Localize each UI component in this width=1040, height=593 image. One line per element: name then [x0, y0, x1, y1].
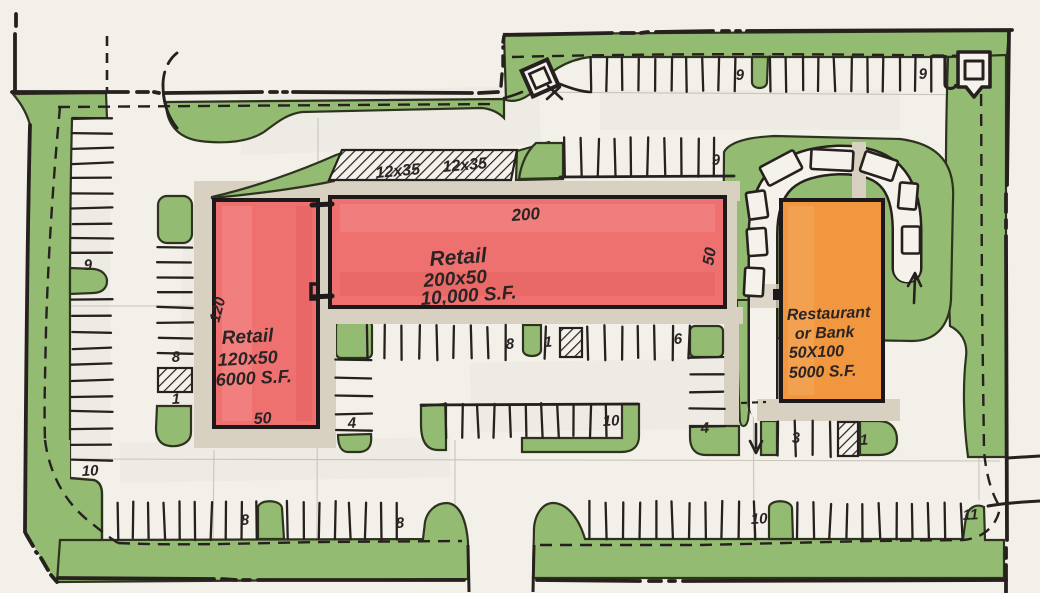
svg-text:50: 50	[253, 410, 272, 428]
svg-text:1: 1	[171, 391, 180, 408]
svg-text:3: 3	[791, 430, 801, 447]
svg-text:9: 9	[918, 66, 928, 83]
svg-text:200: 200	[510, 204, 541, 225]
svg-text:1: 1	[543, 334, 552, 351]
svg-text:4: 4	[699, 420, 710, 438]
svg-text:8: 8	[171, 349, 181, 366]
svg-text:9: 9	[735, 67, 745, 84]
svg-text:9: 9	[83, 257, 93, 274]
svg-text:or Bank: or Bank	[795, 324, 856, 343]
svg-text:6: 6	[673, 331, 683, 348]
svg-text:50: 50	[700, 246, 720, 267]
svg-text:8: 8	[395, 515, 405, 532]
svg-text:4: 4	[346, 415, 357, 433]
svg-text:Retail: Retail	[221, 325, 274, 349]
svg-text:10: 10	[81, 462, 99, 480]
svg-text:5000 S.F.: 5000 S.F.	[789, 363, 857, 382]
svg-text:11: 11	[962, 506, 978, 524]
svg-text:6000 S.F.: 6000 S.F.	[215, 366, 292, 390]
svg-text:8: 8	[505, 336, 515, 353]
svg-text:8: 8	[240, 512, 250, 529]
svg-text:9: 9	[711, 152, 721, 169]
svg-text:1: 1	[859, 432, 868, 449]
svg-text:Restaurant: Restaurant	[787, 304, 872, 324]
svg-text:50X100: 50X100	[789, 343, 845, 362]
svg-text:10: 10	[750, 510, 768, 528]
svg-text:10: 10	[602, 412, 620, 430]
